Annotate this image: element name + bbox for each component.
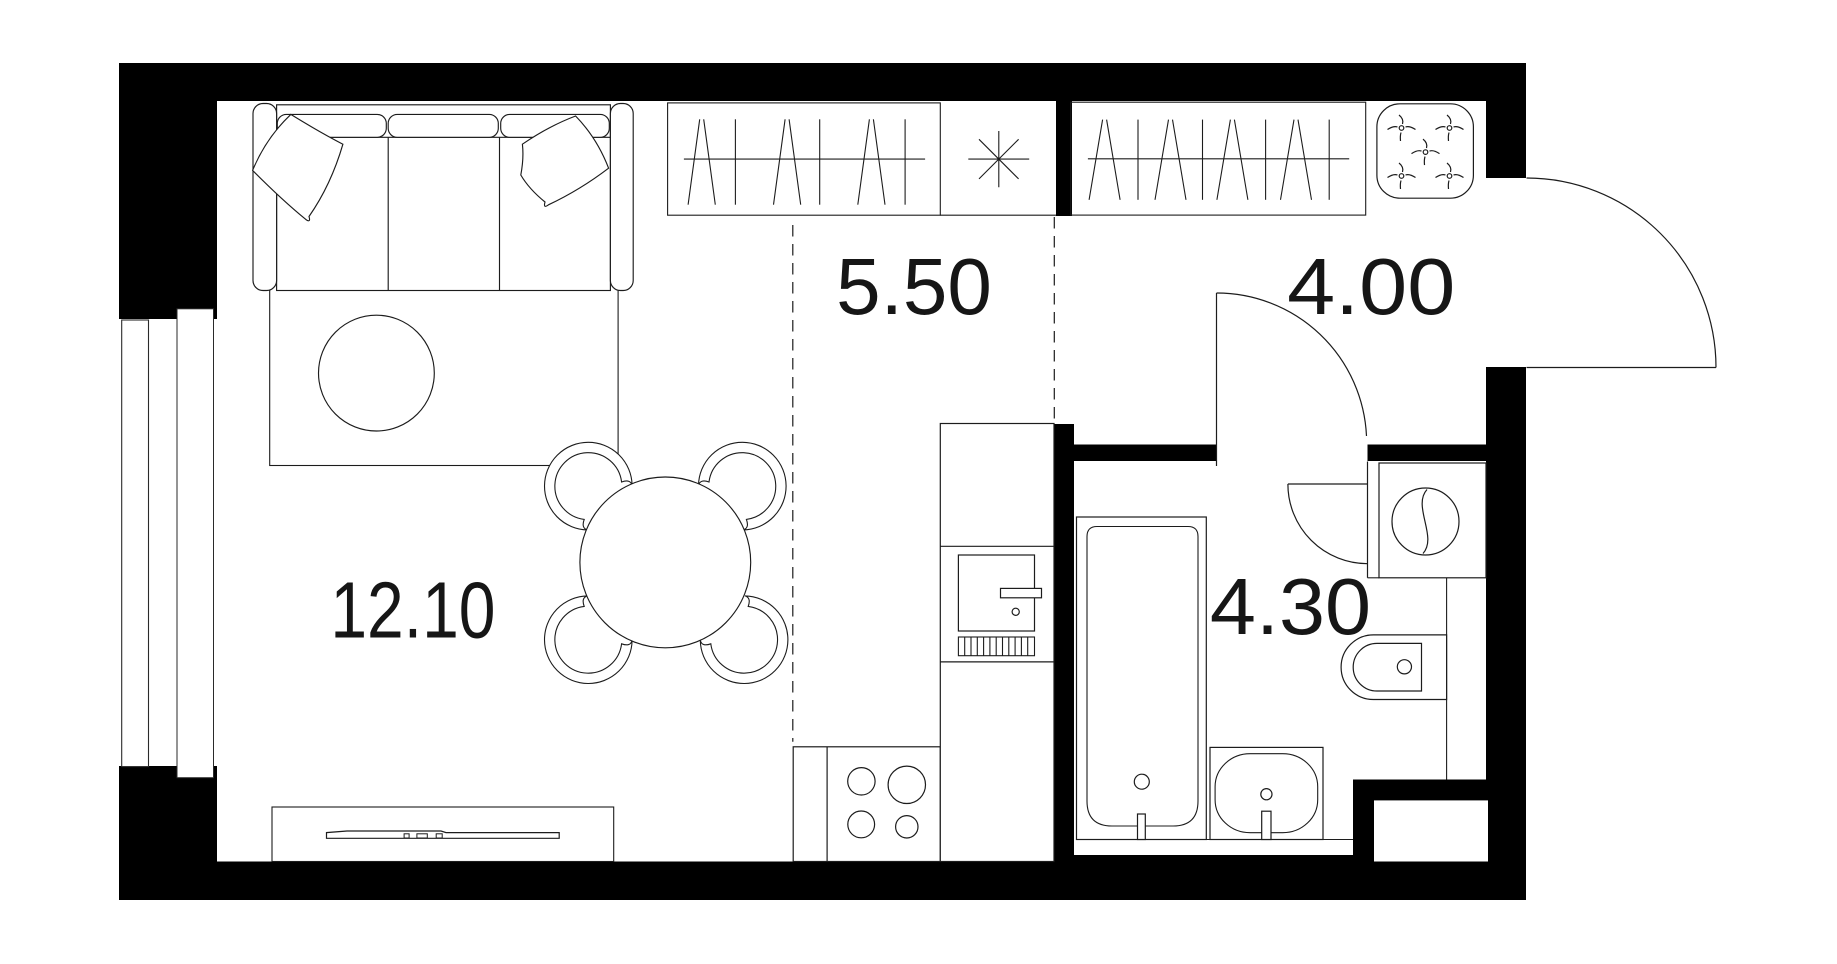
svg-text:4.00: 4.00: [1287, 242, 1455, 331]
svg-text:12.10: 12.10: [330, 566, 495, 655]
svg-text:5.50: 5.50: [836, 242, 992, 331]
svg-text:4.30: 4.30: [1210, 562, 1371, 651]
